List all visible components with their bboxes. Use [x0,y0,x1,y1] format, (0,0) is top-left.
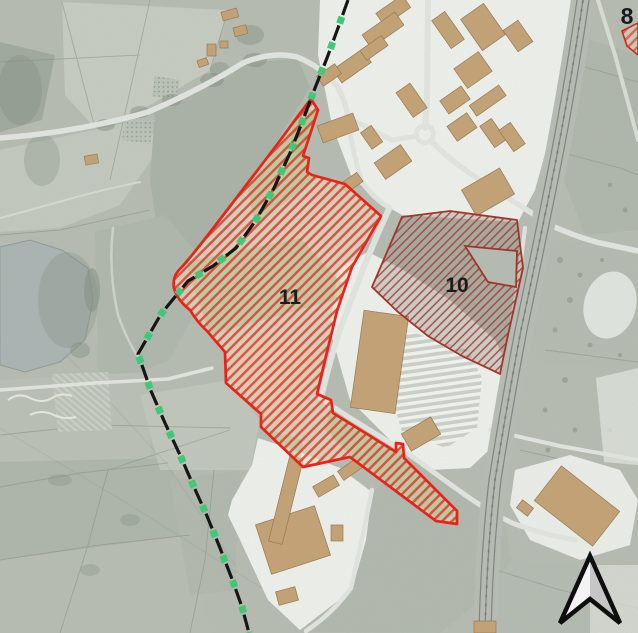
zone-8-label: 8 [621,3,634,29]
zone-11-label: 11 [279,286,302,309]
map-canvas: 11 10 8 [0,0,638,633]
aerial-map: 11 10 8 [0,0,638,633]
zone-10-label: 10 [445,274,468,297]
